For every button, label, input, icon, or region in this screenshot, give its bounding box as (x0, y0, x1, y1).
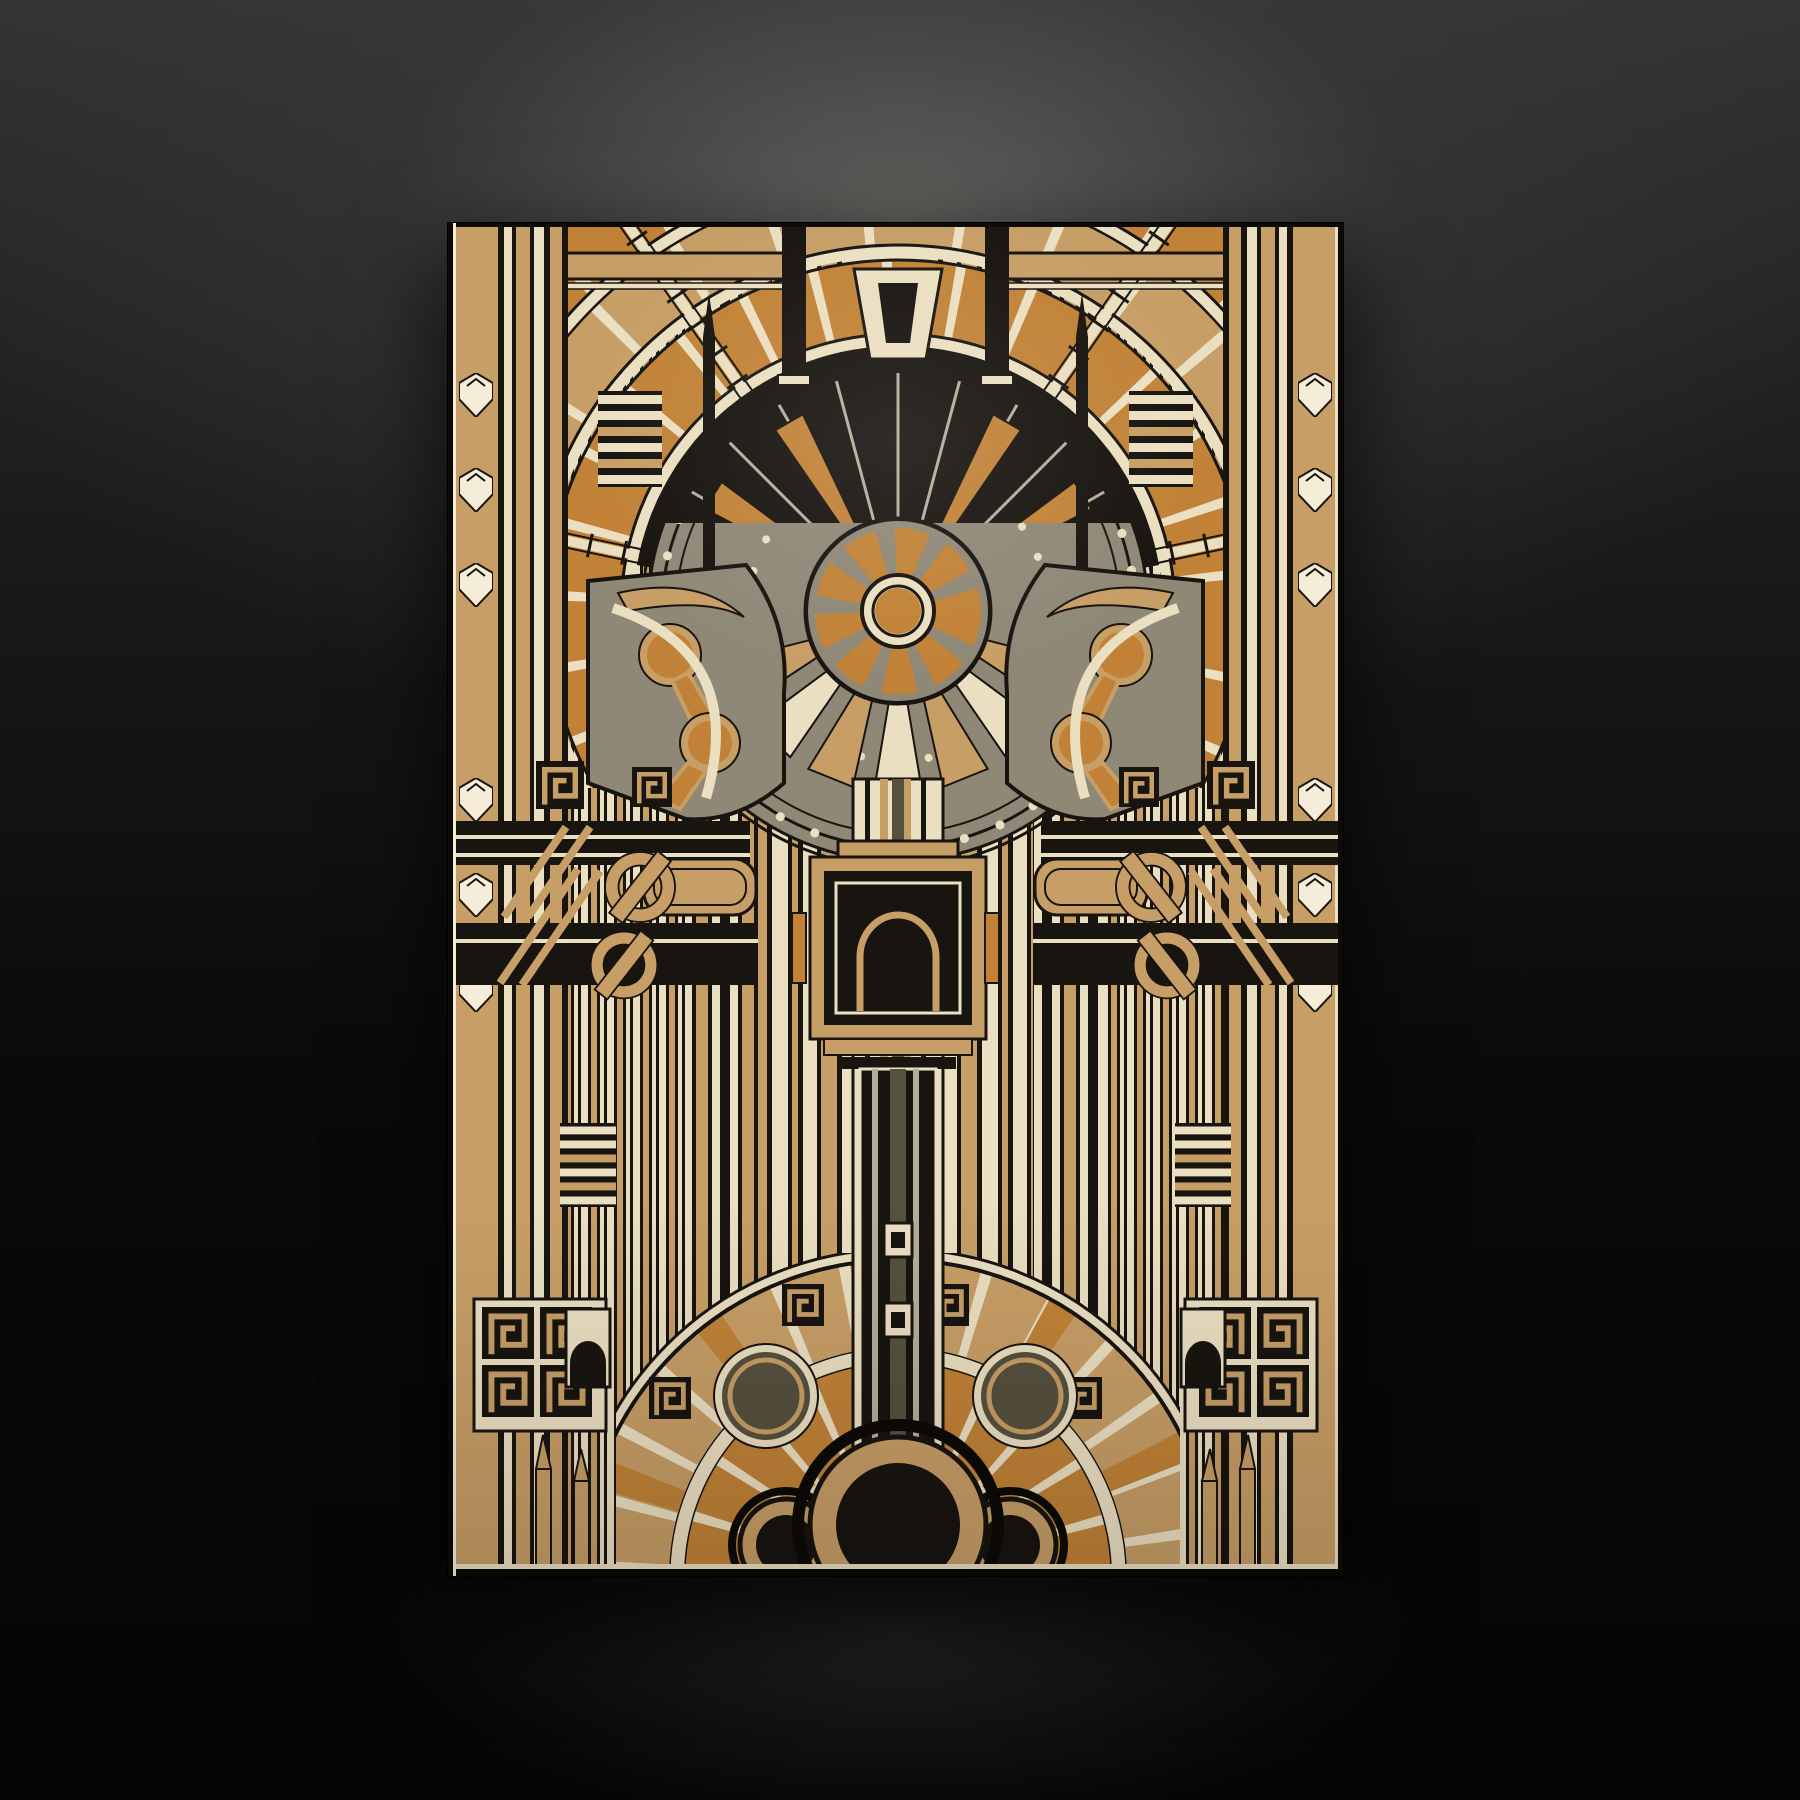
dome-arch (570, 1341, 606, 1387)
artwork-svg (448, 223, 1343, 1576)
wing-left (588, 565, 785, 819)
art-canvas-print (448, 223, 1343, 1576)
turbine-hub (806, 519, 990, 703)
central-shaft (860, 1069, 936, 1469)
wing-right (1006, 565, 1203, 819)
pencil-column (536, 1469, 551, 1576)
knot-motif (605, 851, 674, 923)
keyhole-monument (792, 841, 999, 1069)
keystone (854, 269, 942, 359)
page: { "scene": { "subject": "Art Deco canvas… (0, 0, 1800, 1800)
